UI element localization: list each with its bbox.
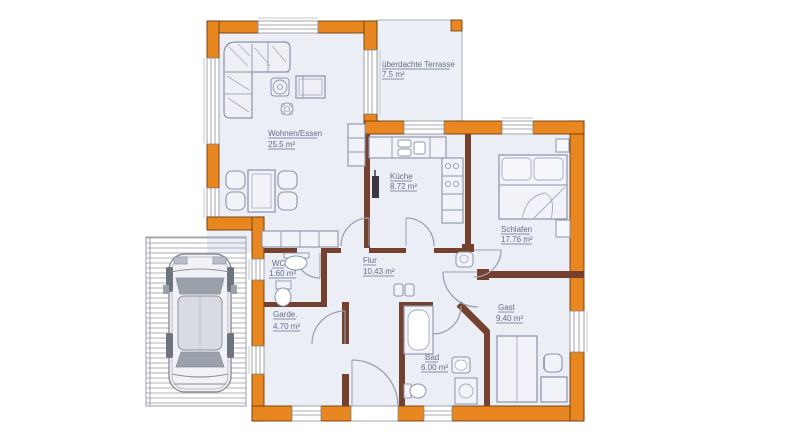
svg-text:Gast: Gast	[498, 303, 516, 312]
svg-text:17.76 m²: 17.76 m²	[501, 235, 533, 244]
svg-text:8.72 m²: 8.72 m²	[390, 182, 417, 191]
svg-text:Wohnen/Essen: Wohnen/Essen	[268, 129, 322, 138]
svg-text:7.5 m²: 7.5 m²	[382, 70, 405, 79]
svg-text:1.60 m²: 1.60 m²	[269, 269, 296, 278]
svg-text:Flur: Flur	[363, 256, 377, 265]
svg-text:WC: WC	[272, 259, 286, 268]
svg-text:25.5 m²: 25.5 m²	[268, 140, 295, 149]
svg-text:9.40 m²: 9.40 m²	[496, 314, 523, 323]
svg-text:4.70 m²: 4.70 m²	[273, 322, 300, 331]
svg-text:Schlafen: Schlafen	[501, 225, 532, 234]
svg-text:Küche: Küche	[390, 172, 413, 181]
svg-text:10.43 m²: 10.43 m²	[363, 267, 395, 276]
svg-text:überdachte Terrasse: überdachte Terrasse	[382, 60, 455, 69]
svg-text:Bad: Bad	[425, 353, 439, 362]
svg-text:6.00 m²: 6.00 m²	[421, 363, 448, 372]
svg-text:Garde.: Garde.	[273, 310, 297, 319]
